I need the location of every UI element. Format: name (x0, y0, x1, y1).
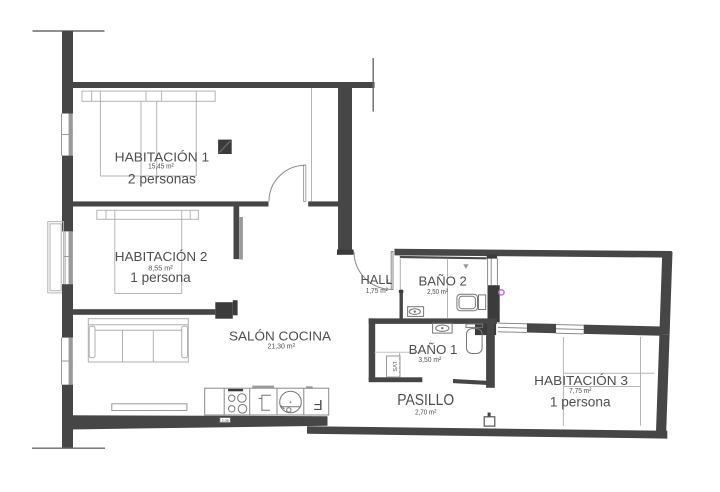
svg-text:2 personas: 2 personas (128, 170, 196, 186)
svg-text:LVS: LVS (391, 362, 397, 372)
svg-text:21,30 m²: 21,30 m² (267, 341, 295, 350)
svg-text:1,75 m²: 1,75 m² (366, 286, 388, 295)
svg-text:2,08: 2,08 (222, 419, 229, 423)
svg-text:2,50 m²: 2,50 m² (427, 287, 448, 296)
svg-text:1 persona: 1 persona (130, 269, 191, 285)
svg-text:15,45 m²: 15,45 m² (148, 161, 174, 170)
svg-text:F: F (314, 396, 323, 413)
svg-text:HALL: HALL (361, 272, 393, 287)
svg-text:2,70 m²: 2,70 m² (415, 407, 437, 416)
svg-text:HABITACIÓN 2: HABITACIÓN 2 (115, 249, 208, 264)
svg-text:3,50 m²: 3,50 m² (418, 355, 441, 364)
svg-text:1 persona: 1 persona (550, 393, 611, 409)
